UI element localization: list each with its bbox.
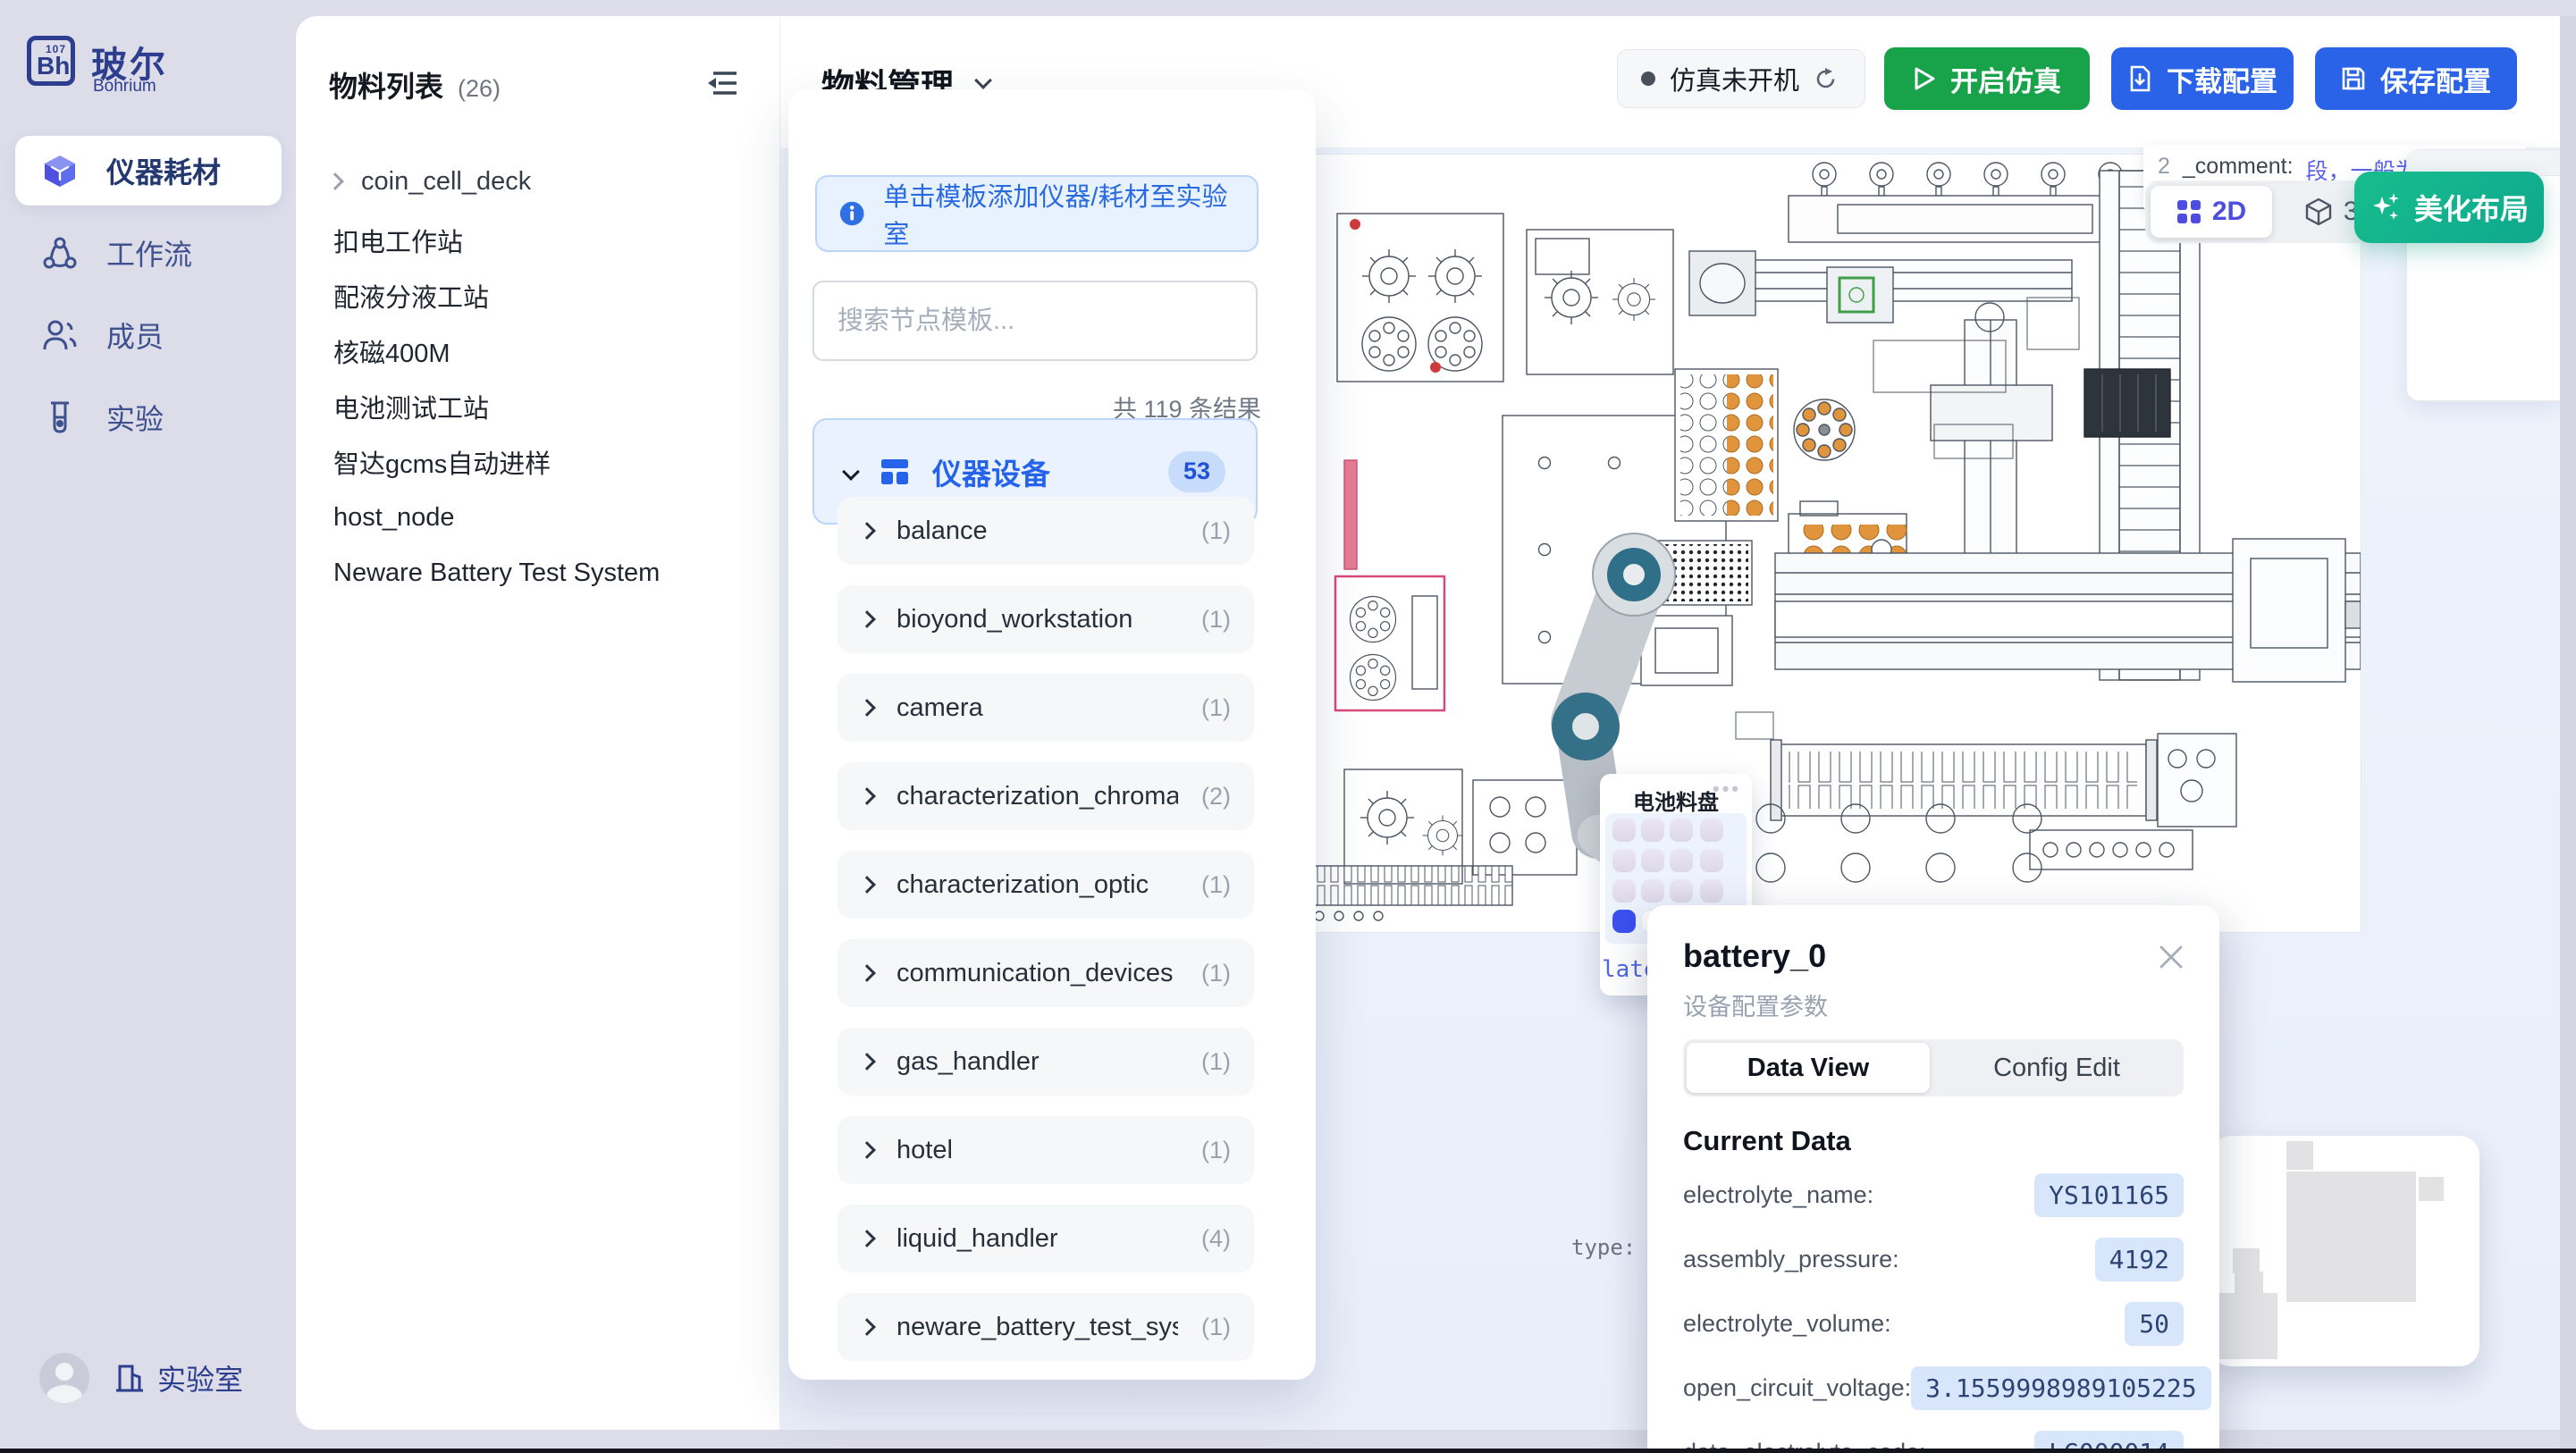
material-label: coin_cell_deck (361, 167, 531, 197)
material-tree-item[interactable]: coin_cell_deck (329, 150, 753, 213)
sidebar-item-label: 工作流 (106, 232, 192, 273)
materials-panel: 物料列表 (26) coin_cell_deck 扣电工作站 配液分液工站 核磁… (296, 16, 780, 1430)
chevron-right-icon (326, 172, 344, 190)
button-label: 下载配置 (2167, 59, 2277, 99)
cube-icon (42, 153, 78, 189)
template-panel: 单击模板添加仪器/耗材至实验室 共 119 条结果 仪器设备 53 balanc… (788, 89, 1316, 1380)
tray-slot[interactable] (1612, 819, 1636, 842)
type-key: type: (1571, 1235, 1636, 1260)
data-row: electrolyte_name: YS101165 (1683, 1163, 2184, 1227)
sidebar-item-label: 成员 (106, 315, 164, 356)
chevron-down-icon (842, 463, 860, 481)
template-label: characterization_chromatic (897, 782, 1178, 811)
tray-slot[interactable] (1612, 849, 1636, 872)
battery-config-popup: battery_0 设备配置参数 Data View Config Edit C… (1647, 905, 2219, 1453)
template-label: gas_handler (897, 1047, 1178, 1077)
chevron-right-icon (858, 699, 876, 717)
logo-element: Bh (37, 52, 70, 80)
template-item[interactable]: characterization_chromatic (2) (838, 762, 1254, 830)
material-item[interactable]: Neware Battery Test System (329, 545, 753, 601)
tray-slot[interactable] (1670, 819, 1693, 842)
sidebar-item-experiments[interactable]: 实验 (15, 382, 282, 452)
more-menu-icon[interactable]: ••• (1713, 777, 1741, 801)
template-item[interactable]: hotel (1) (838, 1116, 1254, 1184)
chevron-right-icon (858, 522, 876, 540)
toggle-2d[interactable]: 2D (2151, 186, 2272, 238)
template-item[interactable]: communication_devices (1) (838, 939, 1254, 1007)
close-icon[interactable] (2159, 945, 2184, 970)
sidebar-item-label: 实验 (106, 397, 164, 438)
template-item[interactable]: bioyond_workstation (1) (838, 585, 1254, 653)
sparkles-icon (2370, 191, 2402, 223)
sidebar-footer: 实验室 (39, 1353, 243, 1403)
material-item[interactable]: 扣电工作站 (329, 213, 753, 268)
data-row: open_circuit_voltage: 3.1559998989105225 (1683, 1356, 2184, 1420)
tray-slot[interactable] (1641, 819, 1664, 842)
chevron-right-icon (858, 1230, 876, 1247)
lab-switcher[interactable]: 实验室 (114, 1357, 243, 1398)
template-count: (1) (1201, 694, 1231, 722)
template-label: communication_devices (897, 959, 1178, 988)
material-item[interactable]: 电池测试工站 (329, 379, 753, 434)
download-config-button[interactable]: 下载配置 (2111, 47, 2294, 110)
collapse-panel-icon[interactable] (706, 68, 740, 98)
row-value: YS101165 (2034, 1173, 2184, 1217)
popup-tabs: Data View Config Edit (1683, 1039, 2184, 1096)
material-label: Neware Battery Test System (333, 559, 660, 588)
tray-slot[interactable] (1612, 879, 1636, 903)
template-count: (2) (1201, 783, 1231, 810)
banner-text: 单击模板添加仪器/耗材至实验室 (883, 176, 1235, 251)
chevron-down-icon (974, 71, 992, 89)
chevron-right-icon (858, 1318, 876, 1336)
template-label: characterization_optic (897, 870, 1178, 900)
data-row: electrolyte_volume: 50 (1683, 1291, 2184, 1356)
template-count: (1) (1201, 871, 1231, 899)
template-count: (1) (1201, 1314, 1231, 1341)
test-tube-icon (42, 399, 78, 435)
hint-banner: 单击模板添加仪器/耗材至实验室 (815, 175, 1259, 252)
sidebar-item-workflow[interactable]: 工作流 (15, 218, 282, 288)
window-bottom-edge (0, 1449, 2576, 1453)
chevron-right-icon (858, 610, 876, 628)
sidebar-item-label: 仪器耗材 (106, 150, 221, 191)
template-label: bioyond_workstation (897, 605, 1178, 634)
lab-label: 实验室 (157, 1357, 243, 1398)
category-badge: 53 (1168, 451, 1225, 492)
chevron-right-icon (858, 1053, 876, 1071)
tray-slot[interactable] (1700, 879, 1723, 903)
template-count: (1) (1201, 960, 1231, 987)
template-count: (1) (1201, 517, 1231, 545)
chevron-right-icon (858, 1141, 876, 1159)
tray-slot[interactable] (1700, 849, 1723, 872)
info-icon (838, 199, 865, 228)
tray-slot[interactable] (1700, 819, 1723, 842)
material-label: 智达gcms自动进样 (333, 443, 551, 481)
popup-title: battery_0 (1683, 937, 1826, 975)
row-value: 50 (2125, 1302, 2184, 1346)
cad-sheet (1301, 154, 2361, 933)
material-label: 扣电工作站 (333, 222, 463, 259)
data-rows: electrolyte_name: YS101165 assembly_pres… (1683, 1163, 2184, 1453)
category-label: 仪器设备 (932, 450, 1145, 493)
chevron-right-icon (858, 787, 876, 805)
button-label: 保存配置 (2380, 59, 2491, 99)
template-label: balance (897, 517, 1178, 546)
row-key: assembly_pressure: (1683, 1246, 1899, 1273)
devices-icon (880, 458, 909, 485)
tray-slot[interactable] (1641, 849, 1664, 872)
template-label: neware_battery_test_system (897, 1313, 1178, 1342)
material-label: 配液分液工站 (333, 277, 489, 315)
button-label: 美化布局 (2414, 187, 2529, 228)
status-text: 仿真未开机 (1670, 60, 1799, 97)
cube-3d-icon (2304, 197, 2333, 226)
refresh-icon[interactable] (1814, 67, 1838, 91)
building-icon (114, 1363, 145, 1393)
cad-floorplan (1301, 155, 2361, 932)
search-input[interactable] (812, 281, 1258, 361)
workflow-icon (42, 235, 78, 271)
template-item[interactable]: neware_battery_test_system (1) (838, 1293, 1254, 1361)
template-item[interactable]: gas_handler (1) (838, 1028, 1254, 1096)
template-list: balance (1) bioyond_workstation (1) came… (838, 497, 1254, 1380)
materials-count: (26) (458, 75, 501, 103)
material-item[interactable]: host_node (329, 490, 753, 545)
template-item[interactable]: balance (1) (838, 497, 1254, 565)
chevron-right-icon (858, 964, 876, 982)
minimap[interactable] (2211, 1136, 2479, 1366)
brand-subname: Bohrium (93, 77, 156, 97)
template-item[interactable]: characterization_optic (1) (838, 851, 1254, 919)
materials-title: 物料列表 (329, 64, 443, 105)
beautify-layout-button[interactable]: 美化布局 (2354, 172, 2544, 243)
save-icon (2341, 66, 2366, 91)
sidebar: 107 Bh 玻尔 Bohrium 仪器耗材 工作流 成员 (0, 0, 296, 1453)
materials-list: coin_cell_deck 扣电工作站 配液分液工站 核磁400M 电池测试工… (329, 150, 753, 601)
template-item[interactable]: camera (1) (838, 674, 1254, 742)
simulation-status: 仿真未开机 (1617, 49, 1865, 108)
sidebar-item-instruments[interactable]: 仪器耗材 (15, 136, 282, 206)
template-count: (1) (1201, 606, 1231, 634)
toggle-2d-label: 2D (2212, 197, 2246, 227)
user-avatar[interactable] (39, 1353, 89, 1403)
template-count: (1) (1201, 1137, 1231, 1164)
sidebar-item-members[interactable]: 成员 (15, 300, 282, 370)
material-label: host_node (333, 503, 454, 533)
row-value: 3.1559998989105225 (1911, 1366, 2210, 1410)
download-icon (2127, 65, 2152, 92)
tray-slot-selected[interactable] (1612, 910, 1636, 933)
bohrium-logo: 107 Bh (27, 36, 75, 86)
data-row: assembly_pressure: 4192 (1683, 1227, 2184, 1291)
save-config-button[interactable]: 保存配置 (2315, 47, 2517, 110)
template-label: camera (897, 693, 1178, 723)
template-count: (1) (1201, 1048, 1231, 1076)
template-label: hotel (897, 1136, 1178, 1165)
tray-slot[interactable] (1641, 879, 1664, 903)
play-icon (1913, 66, 1936, 91)
page-scrollbar[interactable] (2560, 16, 2576, 1449)
tray-slot[interactable] (1670, 879, 1693, 903)
chevron-right-icon (858, 876, 876, 894)
row-key: electrolyte_name: (1683, 1181, 1873, 1209)
tab-config-edit[interactable]: Config Edit (1933, 1039, 2180, 1096)
material-label: 电池测试工站 (333, 388, 489, 425)
row-value: 4192 (2095, 1238, 2184, 1281)
tray-slot[interactable] (1670, 849, 1693, 872)
row-key: electrolyte_volume: (1683, 1310, 1891, 1338)
template-count: (4) (1201, 1225, 1231, 1253)
popup-subtitle: 设备配置参数 (1683, 987, 1828, 1022)
material-item[interactable]: 核磁400M (329, 323, 753, 379)
material-item[interactable]: 智达gcms自动进样 (329, 434, 753, 490)
grid-2d-icon (2176, 199, 2201, 224)
material-item[interactable]: 配液分液工站 (329, 268, 753, 323)
row-key: open_circuit_voltage: (1683, 1374, 1911, 1402)
button-label: 开启仿真 (1950, 59, 2061, 99)
status-dot (1641, 71, 1655, 86)
material-label: 核磁400M (333, 332, 450, 370)
start-simulation-button[interactable]: 开启仿真 (1884, 47, 2090, 110)
members-icon (42, 317, 78, 353)
template-label: liquid_handler (897, 1224, 1178, 1254)
section-title: Current Data (1683, 1125, 1851, 1157)
tab-data-view[interactable]: Data View (1687, 1043, 1930, 1093)
template-item[interactable]: liquid_handler (4) (838, 1205, 1254, 1272)
